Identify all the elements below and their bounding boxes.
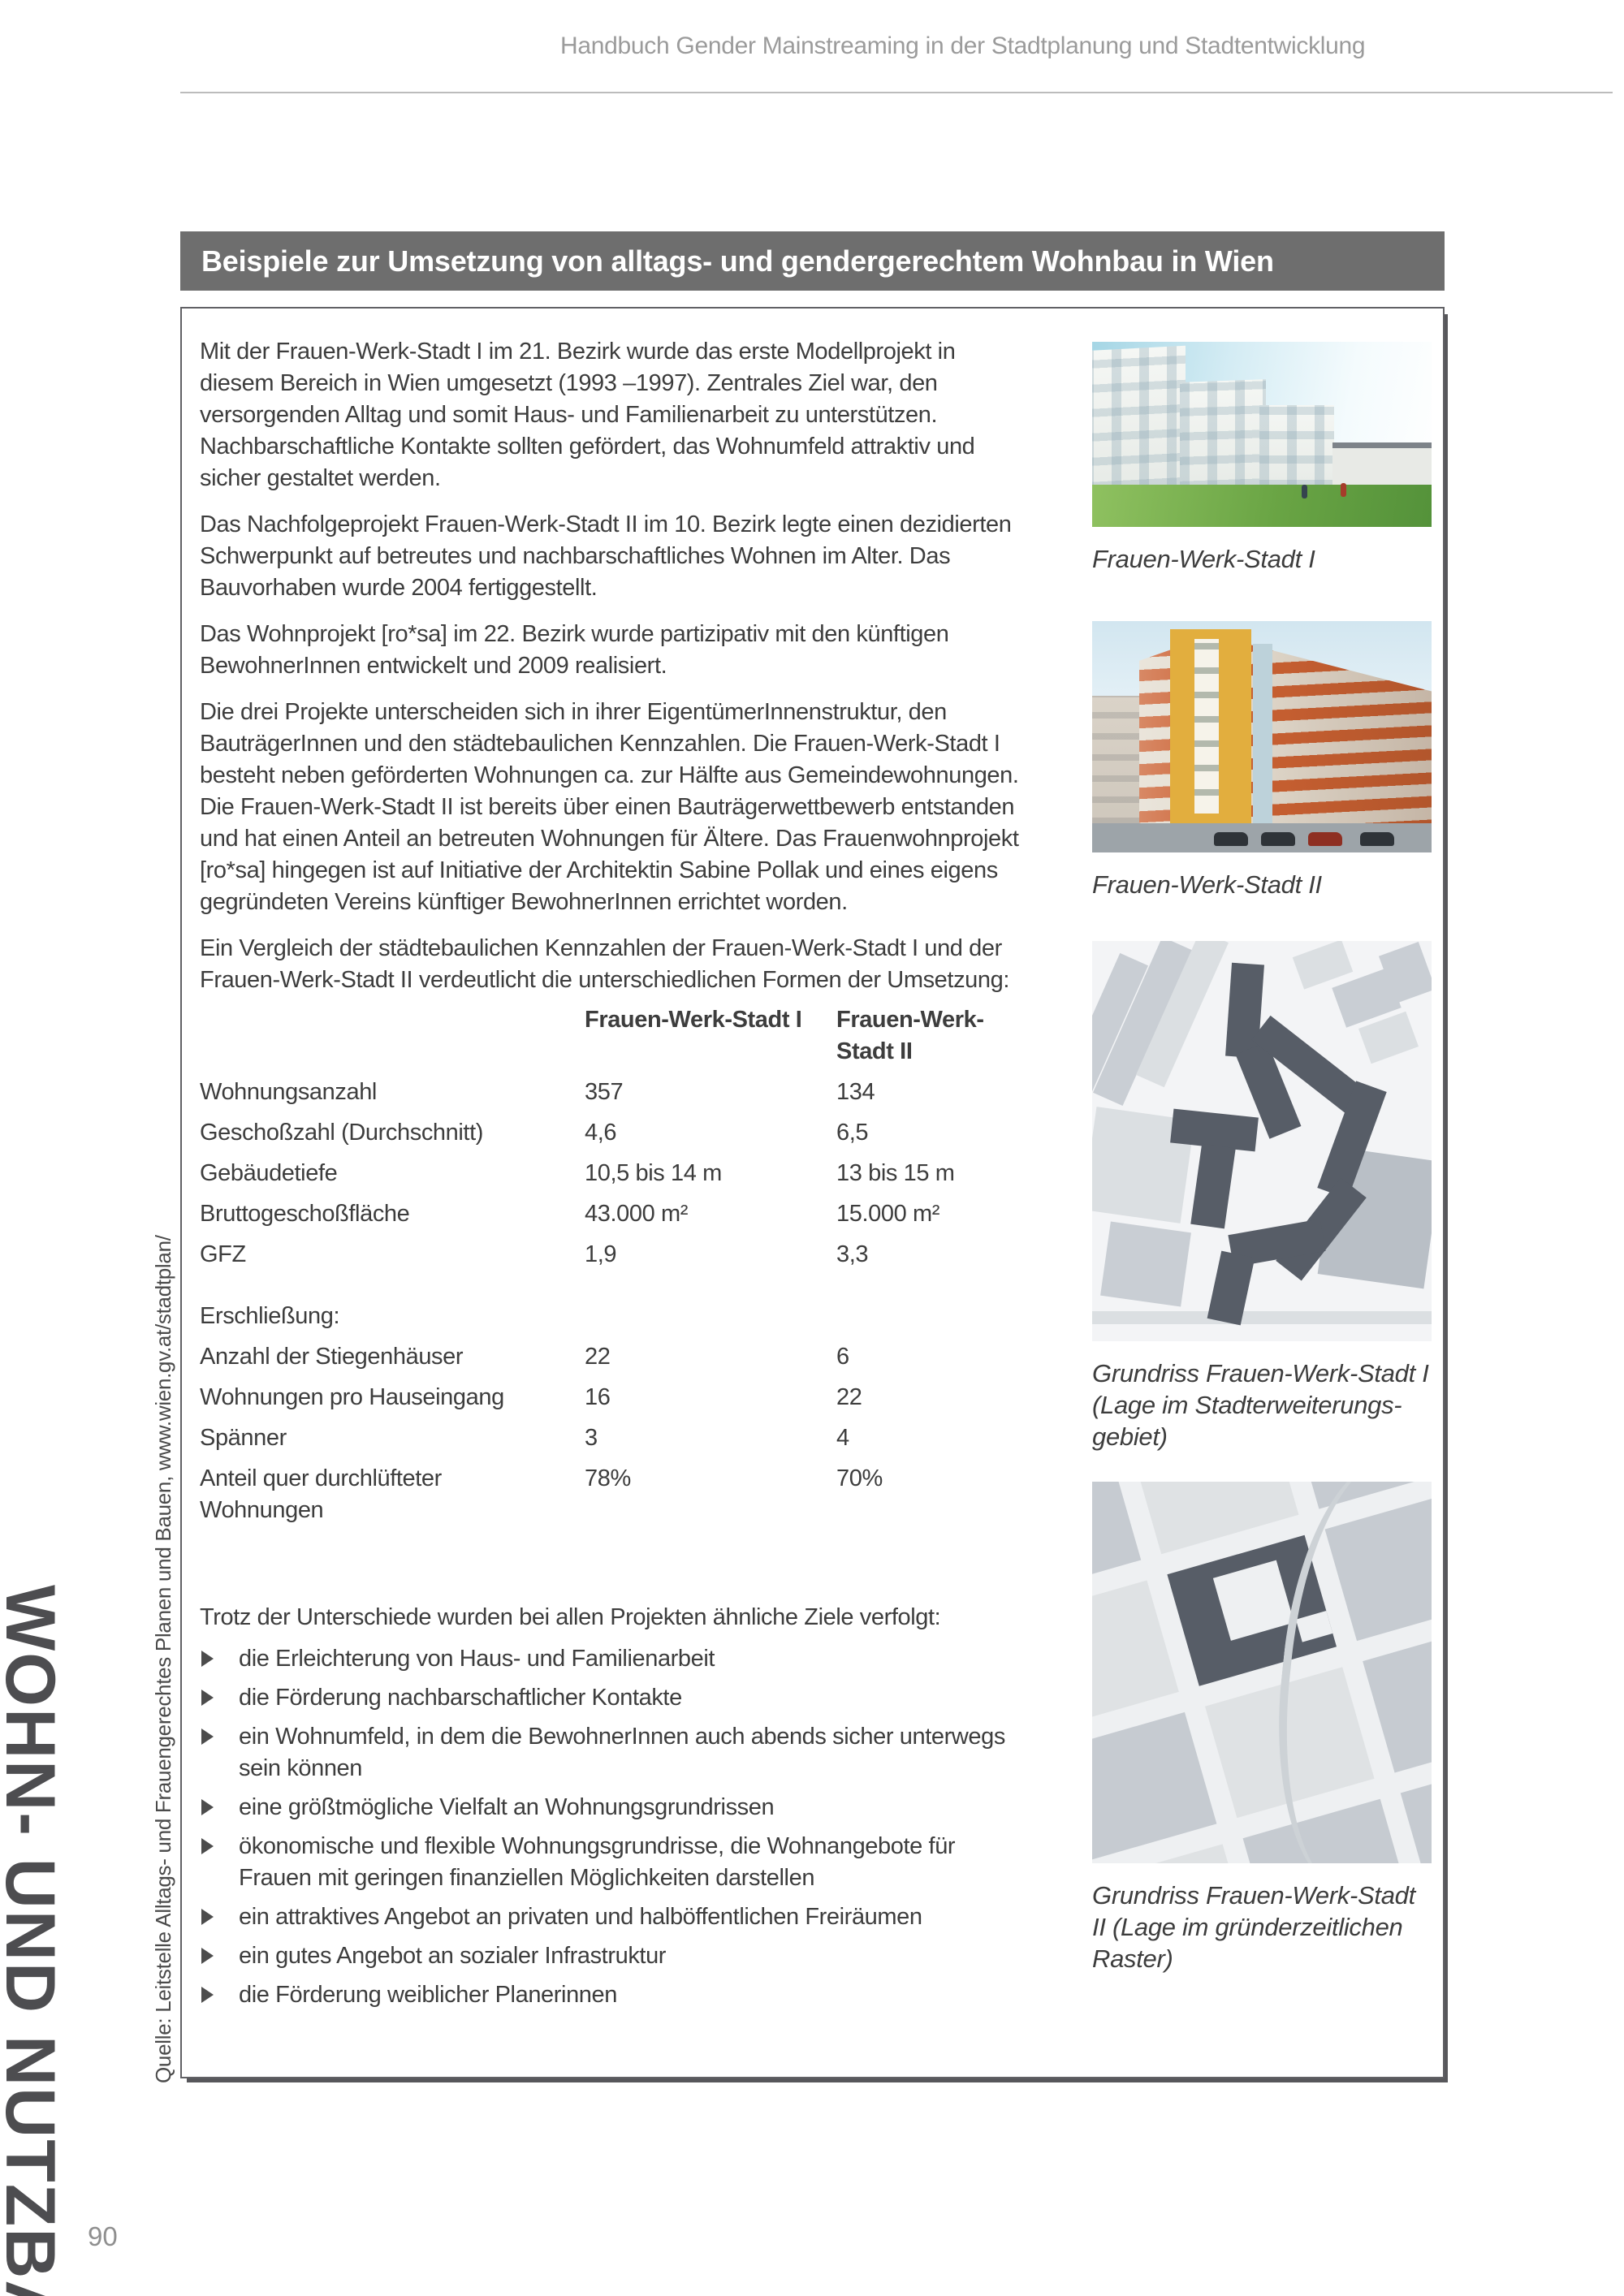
table-row: Wohnungsanzahl 357 134 xyxy=(200,1077,1028,1117)
table-row: Bruttogeschoßfläche 43.000 m² 15.000 m² xyxy=(200,1198,1028,1239)
glass-corner xyxy=(1253,644,1272,824)
car-shape xyxy=(1261,832,1295,846)
value-fws2: 15.000 m² xyxy=(836,1198,1028,1230)
margin-vertical-title: WOHN- UND NUTZBAU xyxy=(0,1585,60,2296)
bullet-triangle-icon xyxy=(201,1909,214,1925)
value-fws2 xyxy=(836,1301,1028,1332)
goal-text: die Förderung nachbarschaftlicher Kontak… xyxy=(239,1685,682,1711)
building-shape xyxy=(1259,405,1334,488)
value-fws2: 4 xyxy=(836,1422,1028,1454)
window-strip xyxy=(1194,639,1219,814)
value-fws2: 134 xyxy=(836,1077,1028,1108)
figure-caption: Grundriss Frauen-Werk-Stadt I (Lage im S… xyxy=(1092,1357,1433,1452)
paragraph: Ein Vergleich der städtebaulichen Kennza… xyxy=(200,933,1028,996)
table-col-header-fws1: Frauen-Werk-Stadt I xyxy=(585,1004,836,1068)
figure-photo-fws2: Frauen-Werk-Stadt II xyxy=(1092,621,1433,900)
bullet-triangle-icon xyxy=(201,1651,214,1667)
value-fws1 xyxy=(585,1301,836,1332)
goal-text: ein Wohnumfeld, in dem die BewohnerInnen… xyxy=(239,1724,1005,1781)
row-label: Wohnungen pro Hauseingang xyxy=(200,1382,585,1413)
table-row: Anteil quer durchlüfteter Wohnungen 78% … xyxy=(200,1463,1028,1535)
table-header-row: Frauen-Werk-Stadt I Frauen-Werk-Stadt II xyxy=(200,1004,1028,1077)
project-building-block xyxy=(1190,1144,1236,1229)
map-block xyxy=(1092,1482,1141,1599)
value-fws2: 22 xyxy=(836,1382,1028,1413)
row-label: Bruttogeschoßfläche xyxy=(200,1198,585,1230)
figure-caption: Frauen-Werk-Stadt I xyxy=(1092,543,1433,575)
comparison-table: Frauen-Werk-Stadt I Frauen-Werk-Stadt II… xyxy=(200,1004,1028,1535)
person-figure xyxy=(1302,485,1307,498)
table-row: Anzahl der Stiegenhäuser 22 6 xyxy=(200,1341,1028,1382)
row-label: Wohnungsanzahl xyxy=(200,1077,585,1108)
row-label: Gebäudetiefe xyxy=(200,1158,585,1189)
goal-text: die Erleichterung von Haus- und Familien… xyxy=(239,1646,715,1672)
row-label: Anzahl der Stiegenhäuser xyxy=(200,1341,585,1373)
figure-caption: Grundriss Frauen-Werk-Stadt II (Lage im … xyxy=(1092,1880,1433,1974)
goal-item: ein Wohnumfeld, in dem die BewohnerInnen… xyxy=(200,1721,1028,1785)
header-rule xyxy=(180,92,1613,93)
bullet-triangle-icon xyxy=(201,1728,214,1745)
content-box: Mit der Frauen-Werk-Stadt I im 21. Bezir… xyxy=(180,307,1445,2078)
value-fws2: 3,3 xyxy=(836,1239,1028,1271)
paragraph: Mit der Frauen-Werk-Stadt I im 21. Bezir… xyxy=(200,336,1028,494)
car-shape xyxy=(1308,832,1342,846)
figure-siteplan-fws1: Grundriss Frauen-Werk-Stadt I (Lage im S… xyxy=(1092,941,1433,1452)
map-road xyxy=(1092,1311,1432,1324)
goal-item: ein gutes Angebot an sozialer Infrastruk… xyxy=(200,1940,1028,1972)
building-tower xyxy=(1170,629,1251,825)
courtyard xyxy=(1213,1560,1294,1641)
section-title-bar: Beispiele zur Umsetzung von alltags- und… xyxy=(180,231,1445,291)
goal-text: ökonomische und flexible Wohnungsgrundri… xyxy=(239,1833,955,1891)
goal-item: die Förderung weiblicher Planerinnen xyxy=(200,1979,1028,2011)
value-fws1: 43.000 m² xyxy=(585,1198,836,1230)
lawn xyxy=(1092,485,1432,527)
value-fws1: 22 xyxy=(585,1341,836,1373)
car-shape xyxy=(1360,832,1394,846)
goal-item: ökonomische und flexible Wohnungsgrundri… xyxy=(200,1831,1028,1894)
table-row: Wohnungen pro Hauseingang 16 22 xyxy=(200,1382,1028,1422)
figure-photo-fws1: Frauen-Werk-Stadt I xyxy=(1092,342,1433,575)
value-fws2: 6 xyxy=(836,1341,1028,1373)
map-block xyxy=(1092,1580,1179,1731)
building-shape xyxy=(1092,346,1186,491)
siteplan-fws2-image xyxy=(1092,1482,1432,1863)
value-fws2: 13 bis 15 m xyxy=(836,1158,1028,1189)
figure-siteplan-fws2: Grundriss Frauen-Werk-Stadt II (Lage im … xyxy=(1092,1482,1433,1974)
photo-fws1-image xyxy=(1092,342,1432,527)
table-header-spacer xyxy=(200,1004,585,1068)
table-row: Spänner 3 4 xyxy=(200,1422,1028,1463)
row-label: Erschließung: xyxy=(200,1301,585,1332)
person-figure xyxy=(1341,483,1346,497)
table-row: Gebäudetiefe 10,5 bis 14 m 13 bis 15 m xyxy=(200,1158,1028,1198)
page: Handbuch Gender Mainstreaming in der Sta… xyxy=(0,0,1624,2296)
goal-text: ein attraktives Angebot an privaten und … xyxy=(239,1904,922,1930)
siteplan-fws1-image xyxy=(1092,941,1432,1341)
map-block xyxy=(1293,941,1354,990)
bullet-triangle-icon xyxy=(201,1838,214,1854)
value-fws1: 3 xyxy=(585,1422,836,1454)
table-row: GFZ 1,9 3,3 xyxy=(200,1239,1028,1280)
figure-caption: Frauen-Werk-Stadt II xyxy=(1092,869,1433,900)
goals-list: die Erleichterung von Haus- und Familien… xyxy=(200,1643,1028,2011)
bullet-triangle-icon xyxy=(201,1690,214,1706)
value-fws1: 78% xyxy=(585,1463,836,1526)
value-fws2: 70% xyxy=(836,1463,1028,1526)
value-fws2: 6,5 xyxy=(836,1117,1028,1149)
row-label: Geschoßzahl (Durchschnitt) xyxy=(200,1117,585,1149)
value-fws1: 16 xyxy=(585,1382,836,1413)
bullet-triangle-icon xyxy=(201,1799,214,1815)
row-label: GFZ xyxy=(200,1239,585,1271)
paragraph: Die drei Projekte unterscheiden sich in … xyxy=(200,697,1028,918)
value-fws1: 10,5 bis 14 m xyxy=(585,1158,836,1189)
bullet-triangle-icon xyxy=(201,1987,214,2003)
building-shape xyxy=(1332,442,1432,487)
map-block xyxy=(1100,1221,1191,1306)
car-shape xyxy=(1214,832,1248,846)
paragraph: Das Wohnprojekt [ro*sa] im 22. Bezirk wu… xyxy=(200,619,1028,682)
goal-item: die Erleichterung von Haus- und Familien… xyxy=(200,1643,1028,1675)
value-fws1: 357 xyxy=(585,1077,836,1108)
goals-intro: Trotz der Unterschiede wurden bei allen … xyxy=(200,1602,1028,1634)
value-fws1: 1,9 xyxy=(585,1239,836,1271)
building-shape xyxy=(1180,379,1266,490)
row-label: Spänner xyxy=(200,1422,585,1454)
goal-text: eine größtmögliche Vielfalt an Wohnungsg… xyxy=(239,1794,774,1820)
goal-text: die Förderung weiblicher Planerinnen xyxy=(239,1982,617,2008)
goal-text: ein gutes Angebot an sozialer Infrastruk… xyxy=(239,1943,666,1969)
article-column: Mit der Frauen-Werk-Stadt I im 21. Bezir… xyxy=(200,336,1028,2018)
value-fws1: 4,6 xyxy=(585,1117,836,1149)
table-row: Erschließung: xyxy=(200,1301,1028,1341)
goal-item: eine größtmögliche Vielfalt an Wohnungsg… xyxy=(200,1792,1028,1823)
goal-item: die Förderung nachbarschaftlicher Kontak… xyxy=(200,1682,1028,1714)
table-row: Geschoßzahl (Durchschnitt) 4,6 6,5 xyxy=(200,1117,1028,1158)
bullet-triangle-icon xyxy=(201,1948,214,1964)
section-title: Beispiele zur Umsetzung von alltags- und… xyxy=(180,231,1445,291)
running-head: Handbuch Gender Mainstreaming in der Sta… xyxy=(560,32,1365,60)
row-label: Anteil quer durchlüfteter Wohnungen xyxy=(200,1463,585,1526)
goal-item: ein attraktives Angebot an privaten und … xyxy=(200,1901,1028,1933)
table-col-header-fws2: Frauen-Werk-Stadt II xyxy=(836,1004,1028,1068)
map-block xyxy=(1092,1712,1216,1863)
page-number: 90 xyxy=(88,2221,118,2252)
margin-source-note: Quelle: Leitstelle Alltags- und Frauenge… xyxy=(151,1235,175,2083)
paragraph: Das Nachfolgeprojekt Frauen-Werk-Stadt I… xyxy=(200,509,1028,604)
photo-fws2-image xyxy=(1092,621,1432,852)
